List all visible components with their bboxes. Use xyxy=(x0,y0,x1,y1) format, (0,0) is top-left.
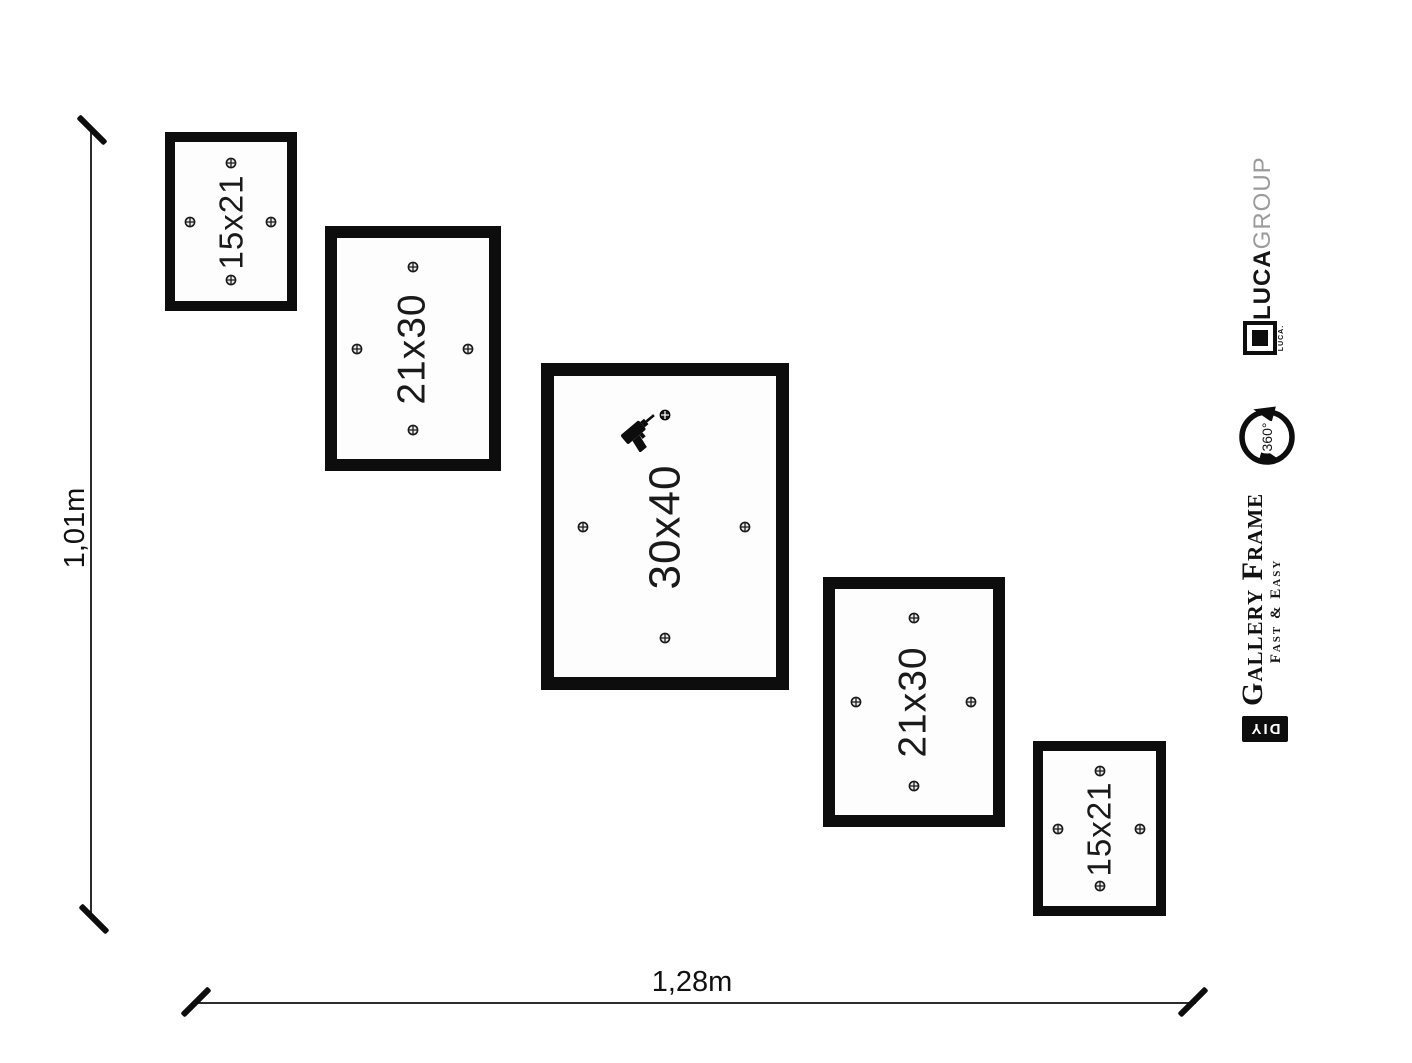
product-title: Gallery Frame xyxy=(1238,516,1268,706)
screw-marker-icon xyxy=(351,343,363,355)
screw-marker-icon xyxy=(908,780,920,792)
screw-marker-icon xyxy=(577,521,589,533)
screw-marker-icon xyxy=(225,157,237,169)
luca-logo-square-icon xyxy=(1243,321,1277,355)
screw-marker-icon xyxy=(850,696,862,708)
dimension-tick-icon xyxy=(76,114,107,145)
frame-15x21-top-left: 15x21 xyxy=(165,132,297,311)
dimension-tick-icon xyxy=(78,903,109,934)
screw-marker-icon xyxy=(407,261,419,273)
wall-height-label: 1,01m xyxy=(59,476,91,580)
frame-size-label: 21x30 xyxy=(391,293,435,404)
screw-marker-icon xyxy=(1094,765,1106,777)
screw-marker-icon xyxy=(739,521,751,533)
brand-name-bold: LUCA xyxy=(1249,249,1276,320)
screw-marker-icon xyxy=(265,216,277,228)
luca-logo: LUCA. xyxy=(1243,316,1285,360)
screw-marker-icon xyxy=(1094,880,1106,892)
frame-size-label: 30x40 xyxy=(640,464,690,589)
rotation-360-label: 360° xyxy=(1259,423,1275,452)
screw-marker-icon xyxy=(1052,823,1064,835)
screw-marker-icon xyxy=(184,216,196,228)
frame-size-label: 15x21 xyxy=(1080,781,1118,876)
screw-marker-icon xyxy=(965,696,977,708)
luca-logo-inner-square-icon xyxy=(1252,330,1268,346)
product-name-block: Gallery Frame Fast & Easy xyxy=(1238,516,1296,706)
screw-marker-icon xyxy=(908,612,920,624)
diy-badge: DIY xyxy=(1242,716,1288,742)
rotation-360-icon: 360° xyxy=(1235,401,1299,469)
screw-marker-icon xyxy=(659,632,671,644)
luca-logo-caption: LUCA. xyxy=(1278,325,1285,351)
brand-wordmark: LUCAGROUP xyxy=(1249,160,1277,320)
frame-21x30-upper: 21x30 xyxy=(325,226,501,471)
horizontal-dimension-line xyxy=(195,1002,1196,1004)
frame-size-label: 21x30 xyxy=(892,646,936,757)
gallery-wall-layout-diagram: 1,01m 1,28m 15x21 21x30 xyxy=(0,0,1412,1063)
screw-marker-icon xyxy=(462,343,474,355)
product-subtitle: Fast & Easy xyxy=(1268,516,1285,706)
brand-name-light: GROUP xyxy=(1249,156,1276,249)
drill-icon xyxy=(616,404,668,452)
screw-marker-icon xyxy=(1134,823,1146,835)
frame-30x40-center: 30x40 xyxy=(541,363,789,690)
frame-21x30-lower: 21x30 xyxy=(823,577,1005,827)
screw-marker-icon xyxy=(407,424,419,436)
frame-size-label: 15x21 xyxy=(212,174,250,269)
wall-width-label: 1,28m xyxy=(592,966,792,998)
frame-15x21-bottom-right: 15x21 xyxy=(1033,741,1166,916)
screw-marker-icon xyxy=(225,274,237,286)
